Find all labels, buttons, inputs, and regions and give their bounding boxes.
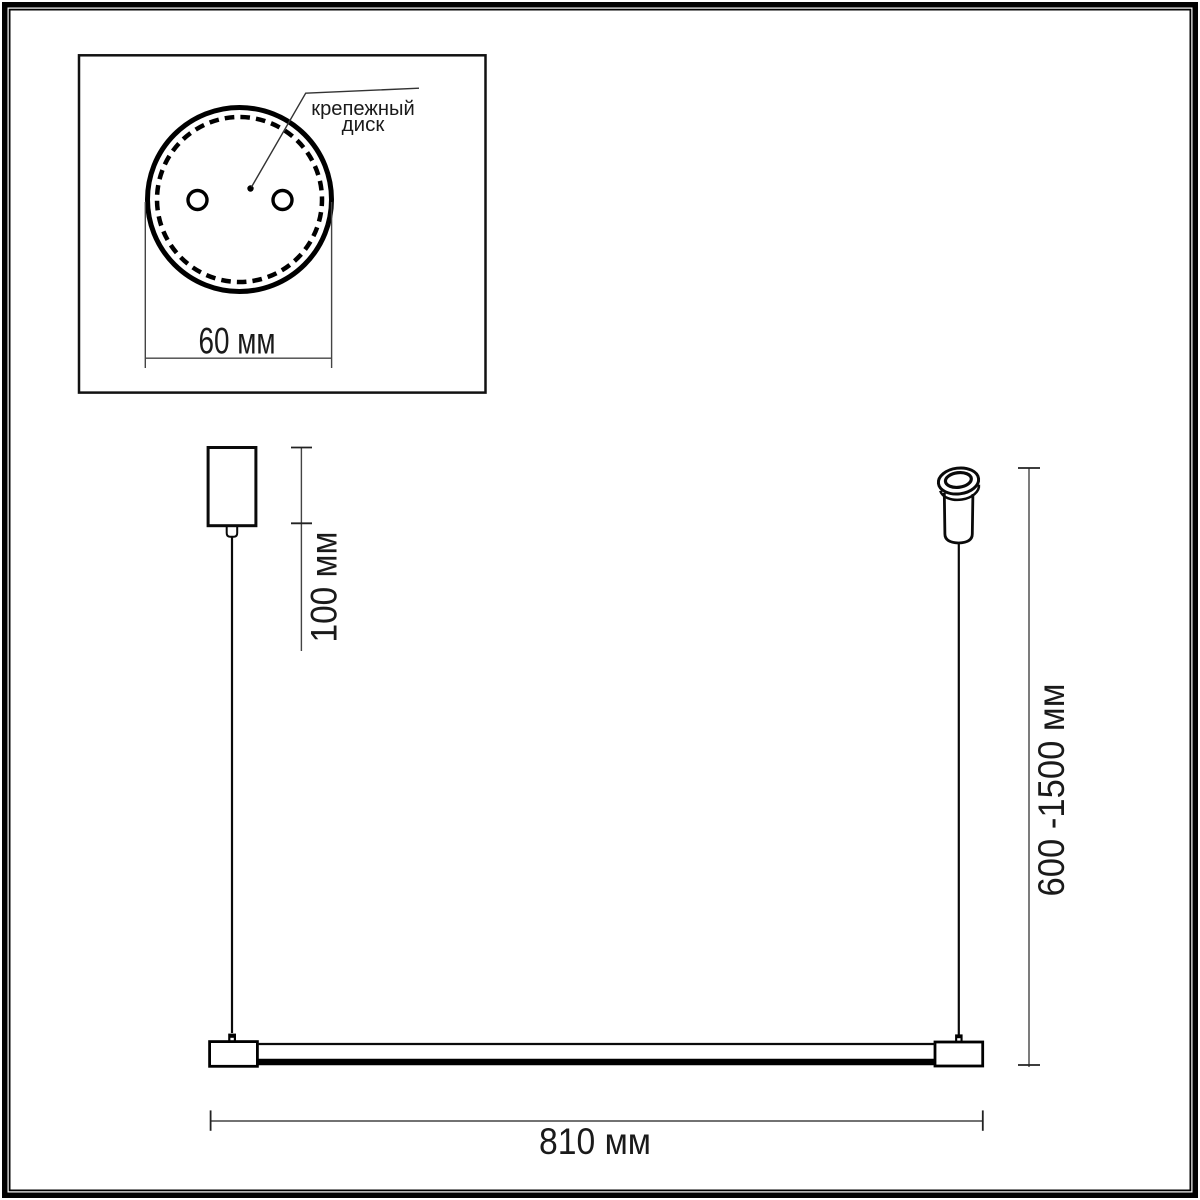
svg-text:100 мм: 100 мм: [303, 532, 345, 643]
svg-text:600 -1500 мм: 600 -1500 мм: [1030, 684, 1072, 897]
svg-text:810 мм: 810 мм: [539, 1120, 651, 1162]
svg-text:60 мм: 60 мм: [199, 320, 276, 362]
svg-text:диск: диск: [342, 113, 386, 136]
